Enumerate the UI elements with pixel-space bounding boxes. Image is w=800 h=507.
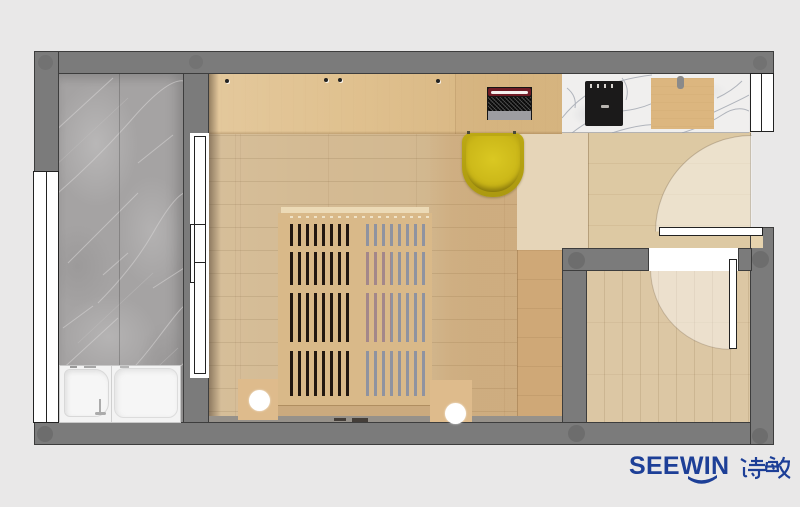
svg-text:SEEWIN: SEEWIN (629, 452, 728, 480)
